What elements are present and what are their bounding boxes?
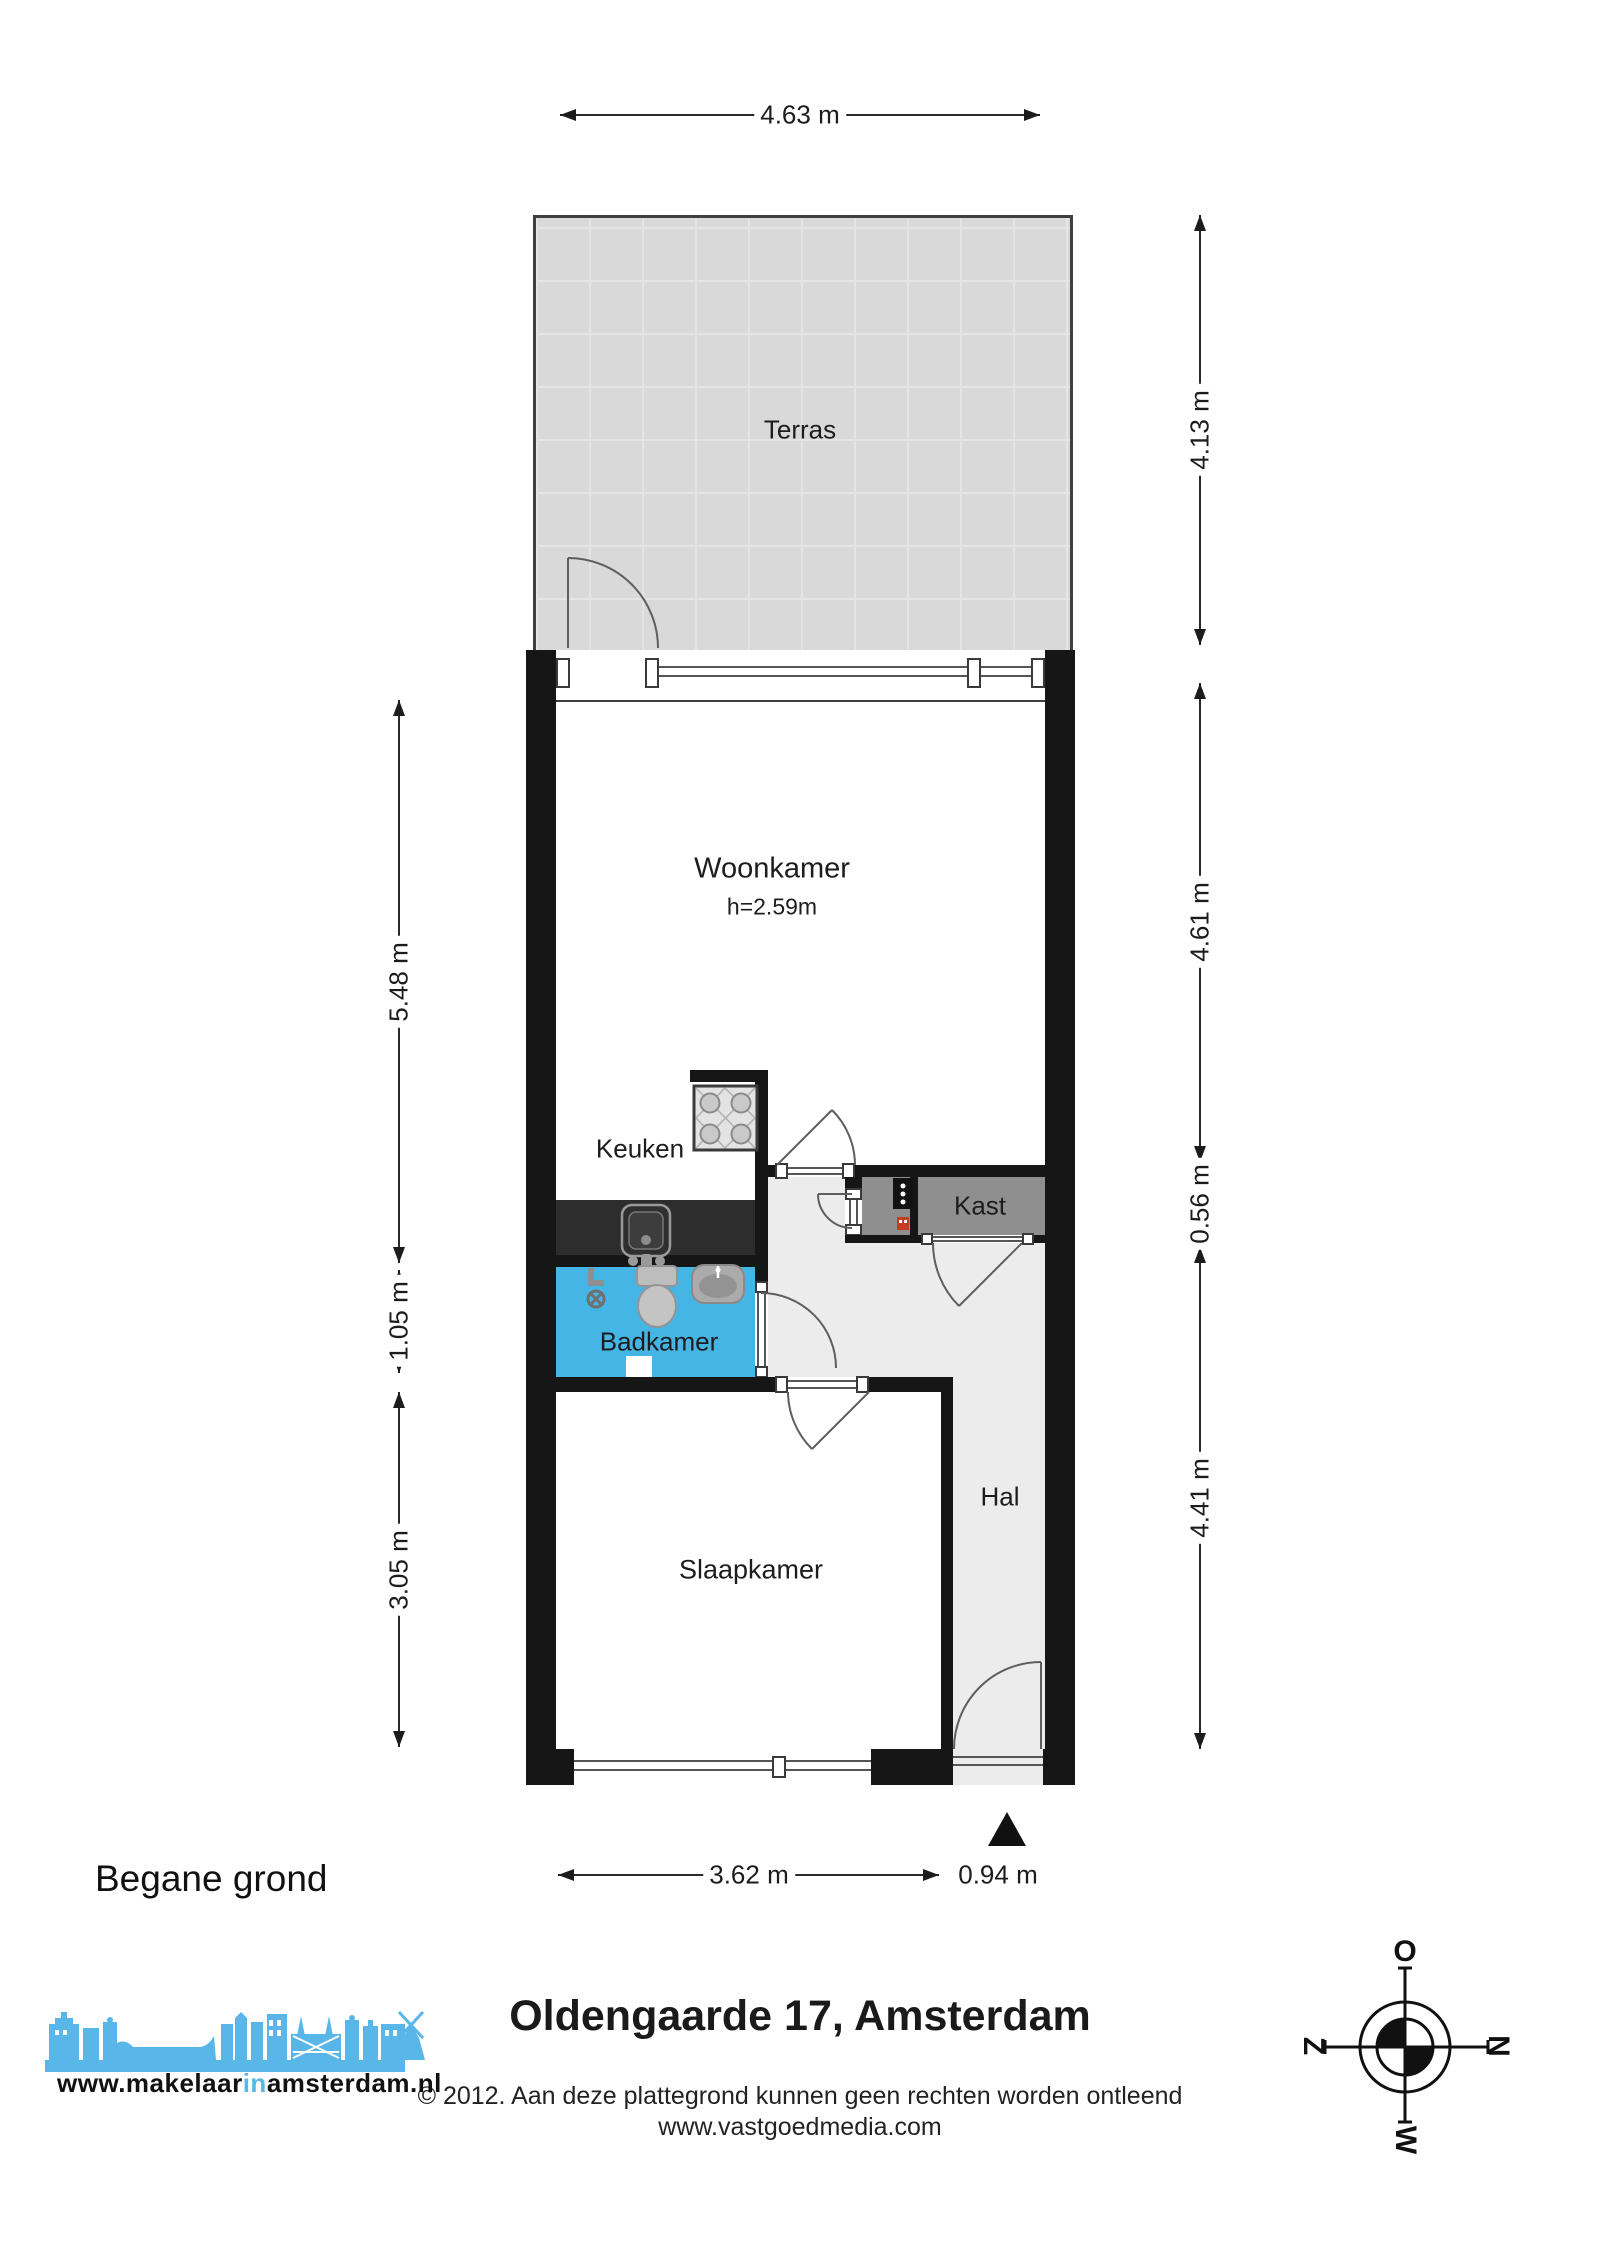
meterkast-door-arc [818, 1194, 852, 1228]
dim-top-width: 4.63 m [754, 99, 846, 132]
woonkamer-label: Woonkamer [694, 853, 850, 886]
logo-url-prefix: www.makelaar [57, 2068, 243, 2098]
dim-badkamer-depth: 1.05 m [383, 1275, 416, 1367]
dim-slaapkamer-depth: 3.05 m [383, 1524, 416, 1616]
terras-door-arc [568, 558, 658, 648]
toilet-icon [637, 1266, 677, 1327]
dim-kast-depth: 0.56 m [1184, 1158, 1217, 1250]
kitchen-sink-icon [622, 1205, 670, 1268]
slaapkamer-door-leaf [812, 1392, 869, 1449]
dim-terras-depth: 4.13 m [1184, 384, 1217, 476]
slaapkamer-door-arc [788, 1392, 812, 1449]
woonkamer-door-leaf [777, 1110, 832, 1165]
dimension-lines [399, 115, 1200, 1875]
compass-icon [1325, 1968, 1488, 2122]
logo-url-accent: in [243, 2068, 267, 2098]
kast-label: Kast [954, 1191, 1006, 1222]
dimension-arrowheads [393, 109, 1206, 1881]
compass-letter-west: W [1388, 2126, 1422, 2154]
badkamer-label: Badkamer [600, 1327, 719, 1358]
woonkamer-height-label: h=2.59m [727, 894, 817, 921]
plan-vector-overlay [0, 0, 1600, 2263]
logo-url-suffix: amsterdam.nl [267, 2068, 442, 2098]
boiler-detail [899, 1184, 907, 1224]
compass-letter-north: N [1481, 2035, 1515, 2057]
dim-upper-left: 5.48 m [383, 936, 416, 1028]
skyline-logo-icon [45, 2012, 425, 2072]
entrance-door-arc [954, 1662, 1041, 1749]
keuken-label: Keuken [596, 1134, 684, 1165]
compass-letter-east: O [1393, 1935, 1416, 1969]
dim-slaapkamer-width: 3.62 m [703, 1859, 795, 1892]
dim-woonkamer-depth: 4.61 m [1184, 876, 1217, 968]
hal-label: Hal [980, 1482, 1019, 1513]
kast-door-arc [933, 1243, 959, 1306]
washbasin-icon [692, 1265, 744, 1303]
dim-hal-depth: 4.41 m [1184, 1452, 1217, 1544]
badkamer-door-arc [761, 1293, 836, 1368]
compass-letter-south: Z [1296, 2037, 1330, 2055]
stove-icon [694, 1086, 757, 1150]
terras-label: Terras [764, 415, 836, 446]
dim-entree-width: 0.94 m [952, 1859, 1044, 1892]
logo-url: www.makelaarinamsterdam.nl [57, 2068, 442, 2099]
slaapkamer-label: Slaapkamer [679, 1555, 823, 1586]
shower-faucet-icon [588, 1268, 604, 1307]
woonkamer-door-arc [832, 1110, 855, 1165]
kast-door-leaf [959, 1243, 1022, 1306]
floorplan-page: Terras Woonkamer h=2.59m Keuken Kast Bad… [0, 0, 1600, 2263]
